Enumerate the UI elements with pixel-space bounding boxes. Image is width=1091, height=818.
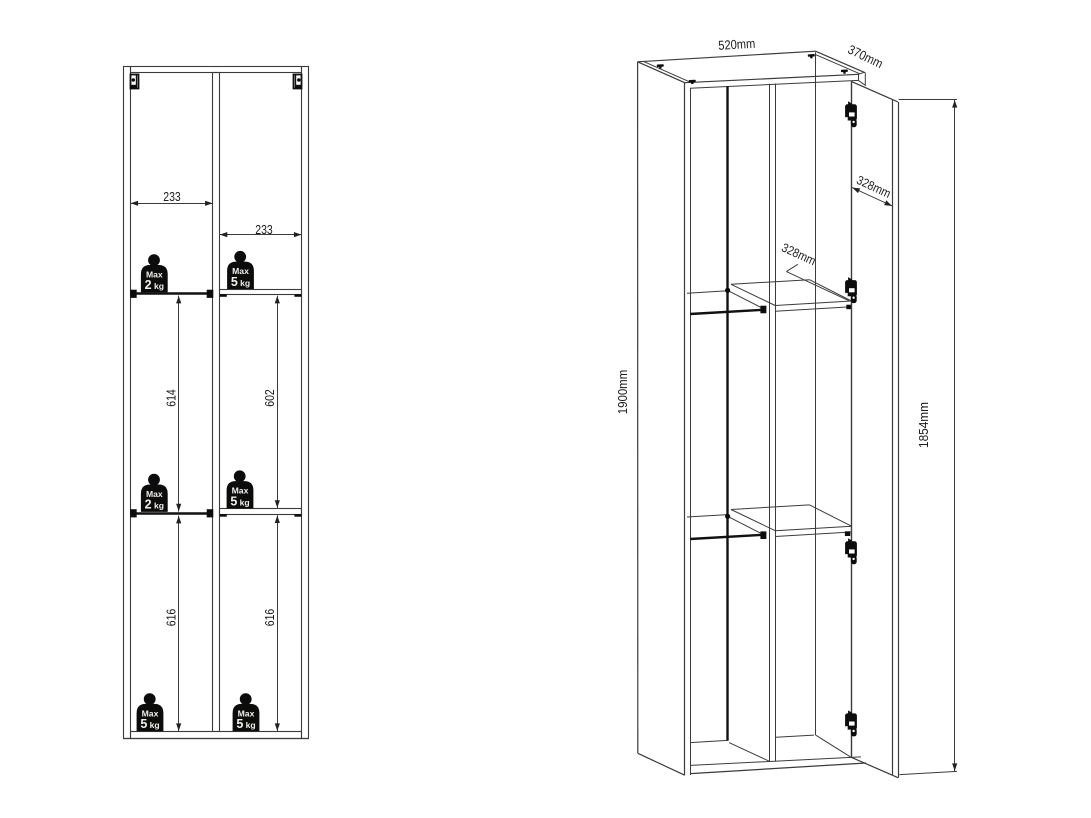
svg-text:614: 614	[164, 389, 179, 407]
svg-text:5 kg: 5 kg	[230, 494, 249, 508]
svg-text:5 kg: 5 kg	[236, 717, 255, 731]
svg-text:1900mm: 1900mm	[616, 370, 630, 415]
svg-text:602: 602	[262, 389, 277, 407]
svg-text:2 kg: 2 kg	[145, 498, 164, 512]
svg-text:616: 616	[262, 609, 277, 627]
svg-text:2 kg: 2 kg	[145, 278, 164, 292]
svg-text:5 kg: 5 kg	[140, 717, 159, 731]
svg-text:520mm: 520mm	[718, 36, 756, 53]
svg-text:1854mm: 1854mm	[917, 402, 931, 448]
svg-text:5 kg: 5 kg	[231, 275, 250, 289]
svg-text:233: 233	[255, 222, 273, 237]
svg-text:616: 616	[164, 609, 179, 627]
svg-text:233: 233	[163, 189, 181, 204]
